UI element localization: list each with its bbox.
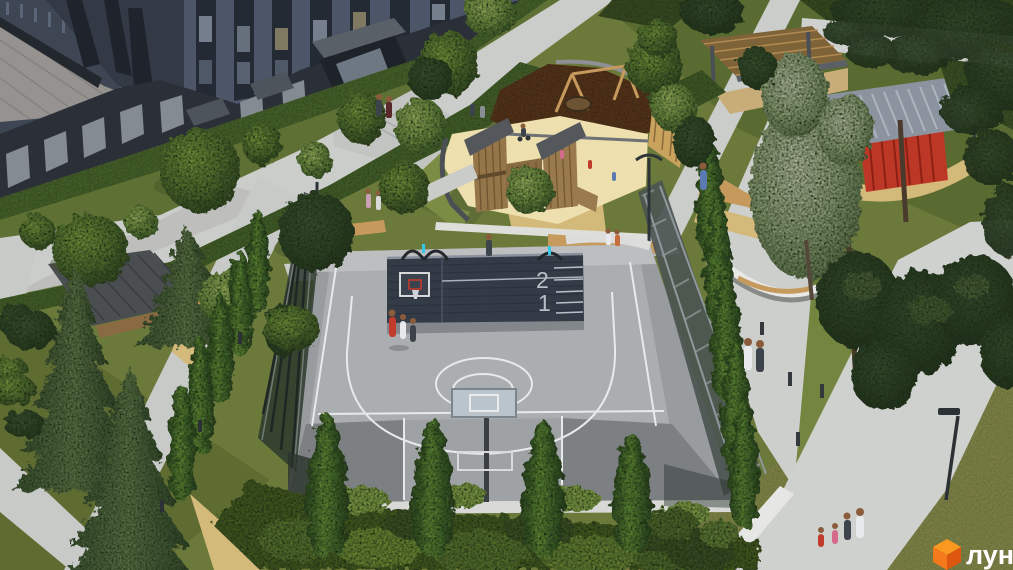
svg-text:лун: лун [966, 540, 1013, 570]
svg-text:1: 1 [538, 290, 551, 316]
